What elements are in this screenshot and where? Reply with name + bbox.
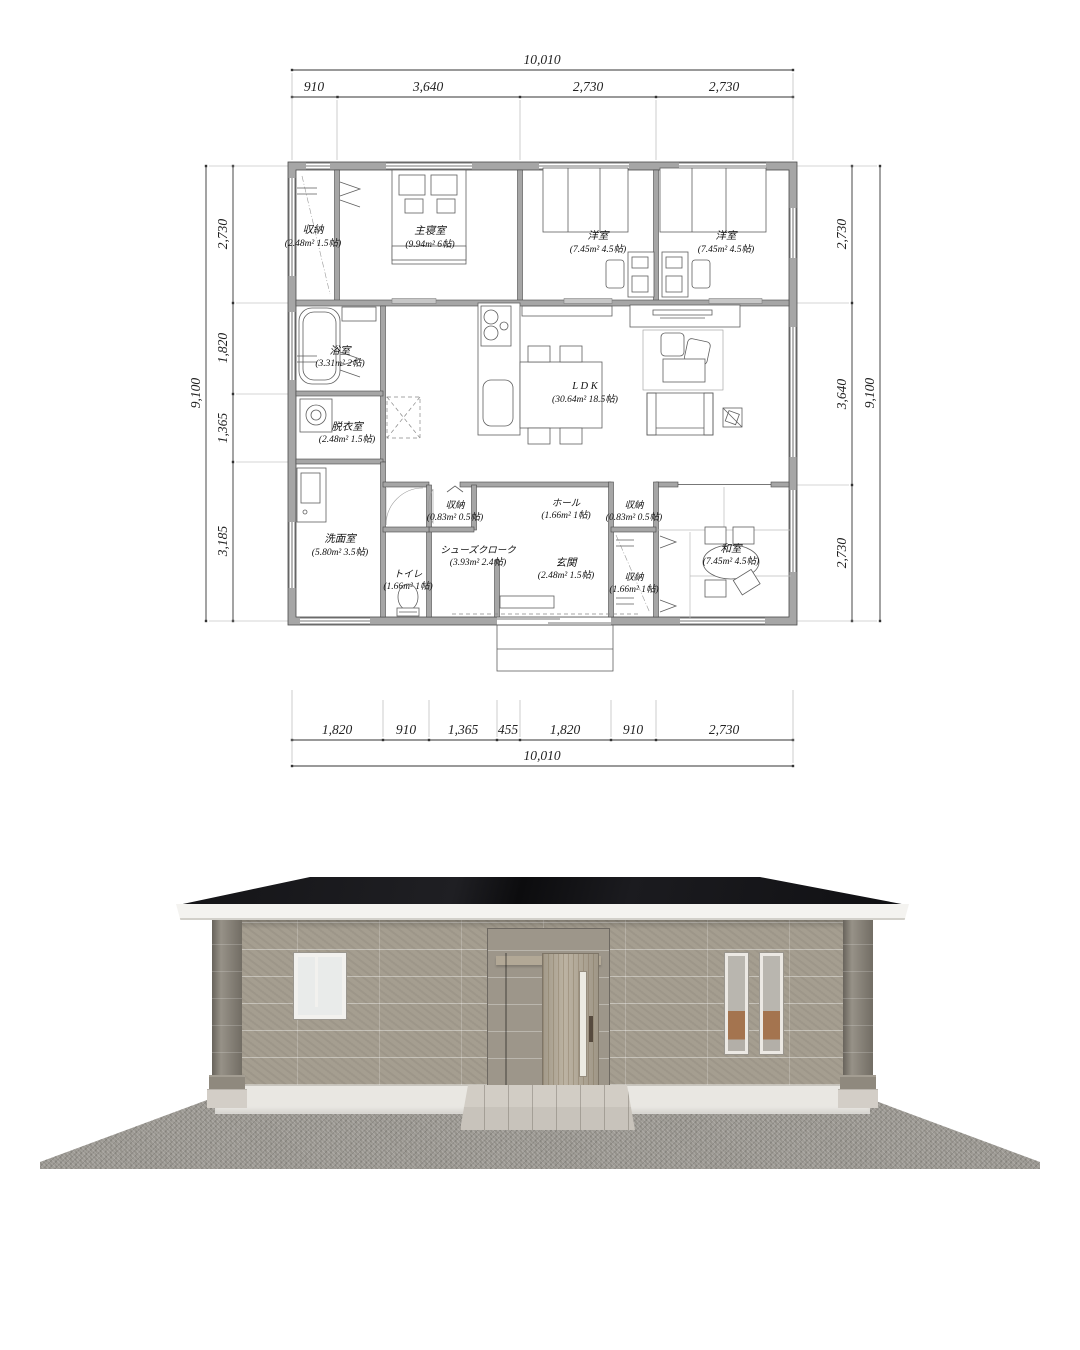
pillar-base-right (838, 1089, 878, 1108)
dim-right-seg3: 2,730 (834, 538, 849, 569)
svg-text:脱衣室: 脱衣室 (331, 421, 364, 433)
window-left-bath (289, 312, 296, 380)
svg-text:洋室: 洋室 (716, 230, 738, 242)
window-right-ldk (790, 327, 797, 457)
svg-text:和室: 和室 (721, 543, 743, 555)
tv-board (630, 305, 740, 327)
svg-text:浴室: 浴室 (330, 345, 352, 357)
entrance-sliding-door (497, 618, 611, 625)
window-bottom-washroom (300, 618, 370, 625)
slit-window-1 (725, 953, 748, 1054)
svg-text:(5.80m² 3.5帖): (5.80m² 3.5帖) (312, 547, 368, 558)
door-glass-slit (579, 971, 587, 1077)
window-right-japanese (790, 490, 797, 572)
dim-bottom-seg5: 1,820 (550, 722, 581, 737)
svg-text:(3.93m² 2.4帖): (3.93m² 2.4帖) (450, 557, 506, 568)
svg-text:(0.83m² 0.5帖): (0.83m² 0.5帖) (606, 512, 662, 523)
svg-text:洋室: 洋室 (588, 230, 610, 242)
dim-top-seg1: 910 (304, 79, 325, 94)
svg-text:(7.45m² 4.5帖): (7.45m² 4.5帖) (570, 244, 626, 255)
svg-text:(2.48m² 1.5帖): (2.48m² 1.5帖) (285, 238, 341, 249)
dim-top-seg2: 3,640 (412, 79, 444, 94)
dim-top-seg3: 2,730 (573, 79, 604, 94)
svg-text:(1.66m² 1帖): (1.66m² 1帖) (609, 584, 658, 595)
pillar-base-left (207, 1089, 247, 1108)
roof-fascia (176, 904, 909, 920)
stove-square (723, 408, 742, 427)
dim-bottom-seg7: 2,730 (709, 722, 740, 737)
svg-text:(1.66m² 1帖): (1.66m² 1帖) (541, 510, 590, 521)
window-right-western2 (790, 208, 797, 258)
hip-roof (178, 877, 907, 905)
entrance-steps (460, 1085, 635, 1130)
single-bed-1 (543, 168, 628, 232)
svg-text:玄関: 玄関 (556, 557, 578, 569)
door-jamb-shadow (505, 953, 507, 1086)
dim-top-seg4: 2,730 (709, 79, 740, 94)
window-bottom-japanese (680, 618, 765, 625)
svg-text:収納: 収納 (303, 224, 325, 236)
dim-left-seg2: 1,820 (215, 333, 230, 364)
svg-text:トイレ: トイレ (394, 569, 423, 580)
window-left-closet (289, 178, 296, 276)
svg-text:L D K: L D K (571, 381, 598, 392)
door-handle (589, 1016, 593, 1042)
vanity (297, 468, 326, 522)
dimension-bottom: 1,820 910 1,365 455 1,820 910 2,730 10,0… (291, 690, 794, 767)
dim-bottom-overall: 10,010 (523, 748, 560, 763)
dim-bottom-seg4: 455 (498, 722, 519, 737)
dim-left-seg4: 3,185 (215, 526, 230, 558)
step-tier-upper (460, 1085, 635, 1108)
floor-plan-drawing: 10,010 910 3,640 2,730 2,730 1,820 910 1… (0, 0, 1080, 830)
svg-text:(30.64m² 18.5帖): (30.64m² 18.5帖) (552, 394, 618, 405)
svg-text:(0.83m² 0.5帖): (0.83m² 0.5帖) (427, 512, 483, 523)
corner-pillar-right (843, 920, 873, 1080)
svg-text:(7.45m² 4.5帖): (7.45m² 4.5帖) (698, 244, 754, 255)
svg-text:(9.94m² 6帖): (9.94m² 6帖) (405, 239, 454, 250)
entrance-door (542, 953, 599, 1088)
svg-text:シューズクローク: シューズクローク (440, 544, 516, 556)
svg-text:(1.66m² 1帖): (1.66m² 1帖) (383, 581, 432, 592)
dim-bottom-seg6: 910 (623, 722, 644, 737)
slit-window-2 (760, 953, 783, 1054)
svg-text:(3.31m² 2帖): (3.31m² 2帖) (315, 358, 364, 369)
svg-text:洗面室: 洗面室 (324, 533, 357, 545)
elevation-render (40, 862, 1040, 1174)
single-bed-2 (660, 168, 766, 232)
corner-pillar-left (212, 920, 242, 1080)
window-top-master (386, 163, 472, 170)
dim-right-seg1: 2,730 (834, 219, 849, 250)
dim-left-seg3: 1,365 (215, 413, 230, 444)
svg-text:ホール: ホール (552, 498, 581, 509)
dim-left-seg1: 2,730 (215, 219, 230, 250)
small-window (294, 953, 346, 1019)
dim-bottom-seg1: 1,820 (322, 722, 353, 737)
page: { "plan": { "dims_top": {"overall": "10,… (0, 0, 1080, 1350)
dim-right-seg2: 3,640 (834, 379, 849, 411)
dimension-left: 9,100 2,730 1,820 1,365 3,185 (188, 165, 288, 622)
dimension-right: 2,730 3,640 2,730 9,100 (797, 165, 881, 622)
dim-bottom-seg3: 1,365 (448, 722, 479, 737)
entrance-recess (487, 928, 610, 1086)
dim-left-overall: 9,100 (188, 378, 203, 409)
svg-text:主寝室: 主寝室 (414, 225, 447, 237)
dim-top-overall: 10,010 (523, 52, 560, 67)
svg-text:(7.45m² 4.5帖): (7.45m² 4.5帖) (703, 556, 759, 567)
step-tier-lower (460, 1107, 635, 1131)
window-left-washroom (289, 522, 296, 588)
svg-text:(2.48m² 1.5帖): (2.48m² 1.5帖) (319, 434, 375, 445)
dim-bottom-seg2: 910 (396, 722, 417, 737)
sofa (647, 393, 713, 435)
svg-text:(2.48m² 1.5帖): (2.48m² 1.5帖) (538, 570, 594, 581)
svg-text:収納: 収納 (445, 500, 466, 511)
svg-text:収納: 収納 (624, 572, 645, 583)
washing-machine (300, 399, 332, 432)
dimension-top: 10,010 910 3,640 2,730 2,730 (291, 52, 794, 160)
window-mullion (315, 957, 318, 1007)
dim-right-overall: 9,100 (862, 378, 877, 409)
svg-text:収納: 収納 (624, 500, 645, 511)
window-top-closet (306, 163, 330, 170)
